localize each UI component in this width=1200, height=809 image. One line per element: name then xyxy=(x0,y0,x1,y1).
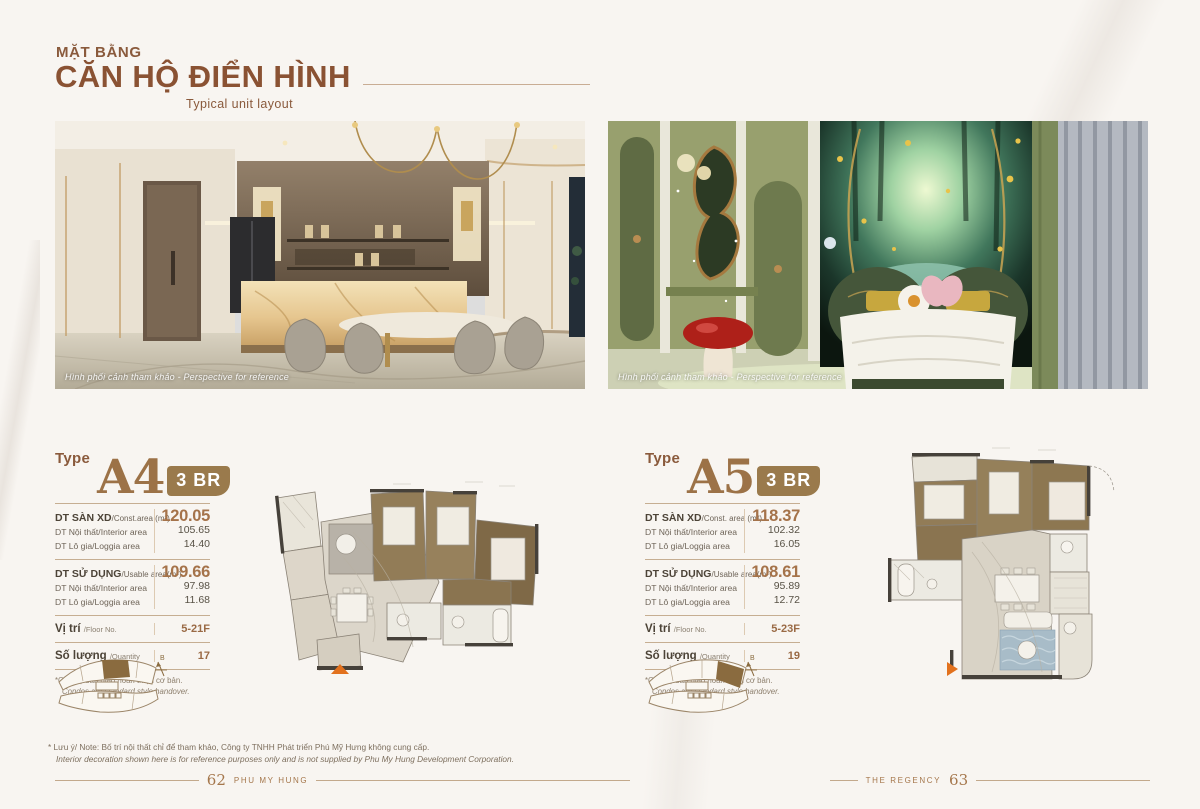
note-vi: * Lưu ý/ Note: Bố trí nội thất chỉ để th… xyxy=(48,742,429,752)
compass-icon: B xyxy=(745,655,757,676)
entry-door xyxy=(143,181,201,341)
spec-sublabel: DT Nội thất/Interior area xyxy=(645,526,744,540)
spec-value: 109.66 xyxy=(158,565,210,580)
type-code-a5: A5 xyxy=(687,459,754,498)
spec-sublabel: DT Nội thất/Interior area xyxy=(55,582,154,596)
spec-value: 120.05 xyxy=(158,509,210,524)
spec-group-usable-area: DT SỬ DỤNG/Usable area(m²) DT Nội thất/I… xyxy=(55,560,210,616)
spec-sublabel: DT Lô gia/Loggia area xyxy=(645,596,744,610)
spec-label: DT SÀN XD xyxy=(645,512,702,524)
page-title-row: CĂN HỘ ĐIỂN HÌNH xyxy=(55,61,590,92)
dimension-ticks xyxy=(393,482,515,486)
floor-value: 5-23F xyxy=(744,623,800,635)
themed-bedroom-photo: Hình phối cảnh tham khảo - Perspective f… xyxy=(608,121,1148,389)
kitchen-dining-illustration xyxy=(55,121,585,389)
page-note: * Lưu ý/ Note: Bố trí nội thất chỉ để th… xyxy=(48,741,514,765)
spec-label: DT SỬ DỤNG xyxy=(55,568,121,580)
window-night xyxy=(569,177,585,337)
spec-sublabel: DT Lô gia/Loggia area xyxy=(645,540,744,554)
kitchen-dining-photo: Hình phối cảnh tham khảo - Perspective f… xyxy=(55,121,585,389)
photo-caption: Hình phối cảnh tham khảo - Perspective f… xyxy=(65,372,289,382)
bedroom-count-badge: 3 BR xyxy=(167,466,230,496)
svg-text:B: B xyxy=(160,655,165,662)
unit-a4-location-highlight xyxy=(102,660,130,679)
unit-a5-floorplan xyxy=(862,432,1154,732)
page-number-left: 62 xyxy=(207,771,226,789)
unit-a4-floorplan xyxy=(253,462,585,718)
spec-group-usable-area: DT SỬ DỤNG/Usable area(m²) DT Nội thất/I… xyxy=(645,560,800,616)
spec-sublabel: DT Nội thất/Interior area xyxy=(55,526,154,540)
unit-a5-keyplan: B xyxy=(642,652,762,730)
spec-sublabel: DT Lô gia/Loggia area xyxy=(55,540,154,554)
page-number-right: 63 xyxy=(949,771,968,789)
spec-sublabel: DT Lô gia/Loggia area xyxy=(55,596,154,610)
title-rule xyxy=(363,84,590,85)
compass-icon: B xyxy=(155,655,167,676)
footer-rule xyxy=(830,780,858,781)
brand-left: PHU MY HUNG xyxy=(234,776,308,785)
floor-row: Vị trí /Floor No. 5-23F xyxy=(645,616,800,643)
footer-rule xyxy=(316,780,630,781)
footer-left: 62 PHU MY HUNG xyxy=(55,771,630,789)
brochure-page: MẶT BẰNG CĂN HỘ ĐIỂN HÌNH Typical unit l… xyxy=(0,0,1200,809)
footer-rule xyxy=(55,780,199,781)
photo-caption: Hình phối cảnh tham khảo - Perspective f… xyxy=(618,372,842,382)
bedroom-illustration xyxy=(608,121,1148,389)
spec-subvalue: 12.72 xyxy=(748,594,800,608)
note-en: Interior decoration shown here is for re… xyxy=(48,753,514,765)
unit-a4-keyplan: B xyxy=(52,652,172,730)
unit-a5-heading: Type A5 3 BR xyxy=(645,446,820,498)
spec-subvalue: 97.98 xyxy=(158,580,210,594)
floor-label-en: /Floor No. xyxy=(674,625,707,634)
spec-value: 118.37 xyxy=(748,509,800,524)
page-title: CĂN HỘ ĐIỂN HÌNH xyxy=(55,61,351,92)
spec-subvalue: 14.40 xyxy=(158,538,210,552)
marble-vein xyxy=(0,240,40,560)
floor-label: Vị trí xyxy=(645,623,671,635)
curtains xyxy=(1032,121,1148,389)
facade-curve xyxy=(1089,466,1114,492)
unit-a4-heading: Type A4 3 BR xyxy=(55,446,230,498)
floor-row: Vị trí /Floor No. 5-21F xyxy=(55,616,210,643)
bedroom-count-badge: 3 BR xyxy=(757,466,820,496)
brand-right: THE REGENCY xyxy=(866,776,941,785)
footer-rule xyxy=(976,780,1150,781)
page-subtitle: Typical unit layout xyxy=(55,97,293,111)
spec-subvalue: 102.32 xyxy=(748,524,800,538)
floor-label-en: /Floor No. xyxy=(84,625,117,634)
spec-value: 108.61 xyxy=(748,565,800,580)
type-label: Type xyxy=(55,450,90,467)
type-code-a4: A4 xyxy=(97,459,164,498)
spec-subvalue: 16.05 xyxy=(748,538,800,552)
footer-right: THE REGENCY 63 xyxy=(830,771,1150,789)
floor-label: Vị trí xyxy=(55,623,81,635)
spec-subvalue: 11.68 xyxy=(158,594,210,608)
spec-subvalue: 95.89 xyxy=(748,580,800,594)
floor-value: 5-21F xyxy=(154,623,210,635)
spec-label: DT SÀN XD xyxy=(55,512,112,524)
svg-text:B: B xyxy=(750,655,755,662)
spec-group-const-area: DT SÀN XD/Const.area (m²) DT Nội thất/In… xyxy=(55,504,210,560)
dimension-ticks xyxy=(992,448,1056,450)
spec-label: DT SỬ DỤNG xyxy=(645,568,711,580)
type-label: Type xyxy=(645,450,680,467)
spec-subvalue: 105.65 xyxy=(158,524,210,538)
spec-group-const-area: DT SÀN XD/Const. area (m²) DT Nội thất/I… xyxy=(645,504,800,560)
spec-sublabel: DT Nội thất/Interior area xyxy=(645,582,744,596)
